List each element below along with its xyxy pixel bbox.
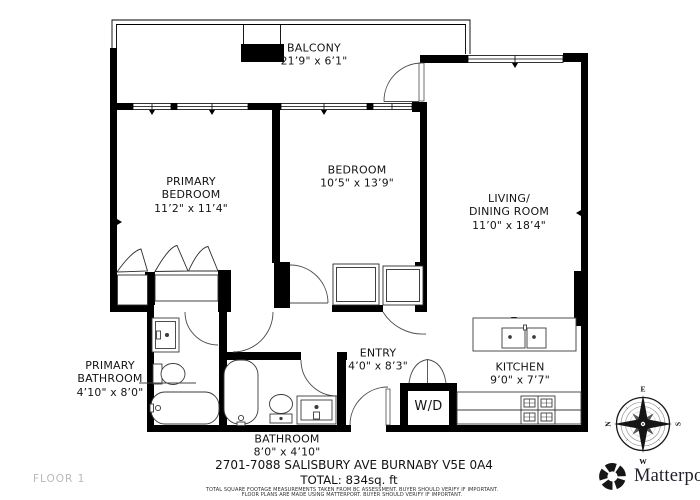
- washer-dryer-label: W/D: [414, 399, 442, 415]
- compass-rose-icon: E W N S: [604, 385, 683, 467]
- toilet: [153, 364, 185, 385]
- matterport-logo-icon: [597, 461, 628, 492]
- balcony-label: BALCONY 21’9" x 6’1": [281, 42, 348, 69]
- window: [177, 104, 248, 110]
- matterport-wordmark: Matterport®: [634, 466, 700, 487]
- bedroom-door: [290, 265, 328, 303]
- bifold-door-icon: [117, 249, 148, 272]
- entry-front-door: [350, 387, 390, 425]
- compass-south-label: S: [674, 422, 683, 426]
- compass-north-label: N: [604, 421, 613, 427]
- total-area-line: TOTAL: 834sq. ft: [300, 473, 397, 487]
- window: [281, 104, 367, 110]
- kitchen-counter: [457, 392, 581, 424]
- compass-east-label: E: [640, 385, 645, 394]
- matterport-logo: Matterport®: [597, 461, 700, 492]
- window: [373, 104, 412, 110]
- toilet: [270, 395, 293, 424]
- closets: [117, 246, 423, 306]
- address-line: 2701-7088 SALISBURY AVE BURNABY V5E 0A4: [215, 458, 493, 472]
- vanity-sink: [152, 318, 179, 352]
- balcony-column: [241, 44, 284, 62]
- kitchen-island: [473, 318, 576, 351]
- balcony-door: [384, 63, 424, 102]
- bifold-door-icon: [155, 246, 188, 272]
- window: [133, 104, 171, 110]
- bifold-door-icon: [189, 247, 219, 272]
- entry-label: ENTRY 4’0" x 8’3": [348, 347, 408, 374]
- vanity-sink: [297, 396, 336, 424]
- floor-plan-drawing: E W N S: [0, 0, 700, 500]
- bathtub: [224, 360, 258, 426]
- bathtub: [150, 392, 219, 424]
- bathroom-door: [301, 360, 337, 396]
- kitchen-label: KITCHEN 9’0" x 7’7": [490, 361, 550, 388]
- primary-bathroom-label: PRIMARY BATHROOM 4’10" x 8’0": [77, 359, 144, 399]
- hall-door: [233, 312, 273, 352]
- bathroom-label: BATHROOM 8’0" x 4’10": [254, 433, 321, 460]
- floor-label: FLOOR 1: [33, 473, 85, 485]
- living-dining-label: LIVING/ DINING ROOM 11’0" x 18’4": [469, 192, 549, 232]
- stove: [521, 396, 555, 424]
- windows: [133, 56, 563, 110]
- primary-bathroom-door: [185, 312, 218, 345]
- floor-plan-page: E W N S BALCONY 21’9" x 6’1" PRIMARY BED…: [0, 0, 700, 500]
- entry-closet-door: [383, 312, 426, 334]
- bedroom-label: BEDROOM 10’5" x 13’9": [320, 164, 394, 191]
- window: [468, 56, 563, 63]
- disclaimer-line-2: FLOOR PLANS ARE MADE USING MATTERPORT. B…: [242, 492, 462, 498]
- primary-bedroom-label: PRIMARY BEDROOM 11’2" x 11’4": [154, 175, 228, 215]
